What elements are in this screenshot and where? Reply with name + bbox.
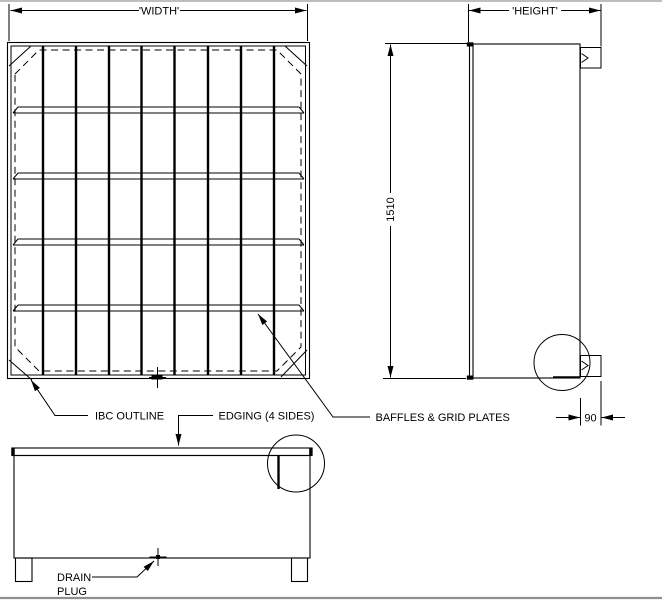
plan-grid-plate-1: [13, 107, 304, 113]
side-edging-cap-bottom: [467, 376, 474, 380]
chevron-right-icon: [582, 54, 589, 63]
ibc-outline-dashed: [15, 50, 301, 371]
edging-leader: [179, 416, 214, 446]
front-body-rect: [14, 456, 310, 559]
width-dimension: 'WIDTH': [9, 4, 308, 41]
front-edging-cap-right: [309, 448, 312, 456]
plan-chamfer-bottom-left: [9, 360, 32, 380]
height-dim-text: 'HEIGHT': [512, 6, 558, 18]
plan-centre-mark: [149, 367, 166, 388]
edge-depth-dim-text: 90: [584, 413, 596, 425]
front-leg-left: [16, 558, 33, 582]
edging-label: EDGING (4 SIDES): [219, 411, 315, 423]
plan-grid-plate-4: [13, 305, 304, 311]
drain-plug-label-line2: PLUG: [57, 586, 87, 598]
side-body-rect: [473, 44, 580, 378]
ibc-outline-leader: [31, 380, 88, 416]
side-height-dim-text: 1510: [385, 197, 397, 221]
technical-drawing: 'WIDTH' 'HEIGHT' 1510 90: [0, 0, 662, 603]
plan-chamfer-top-left: [9, 46, 31, 66]
front-edging-cap-left: [11, 448, 14, 456]
side-height-dimension: 1510: [383, 44, 468, 379]
height-dimension: 'HEIGHT': [469, 4, 602, 47]
front-detail-circle: [268, 435, 325, 492]
front-view: [11, 435, 324, 582]
chevron-right-icon: [582, 361, 589, 370]
plan-grid-plate-2: [13, 173, 304, 179]
edge-depth-dimension: 90: [556, 381, 625, 426]
plan-view: [8, 43, 310, 389]
side-detail-circle: [534, 335, 590, 391]
front-leg-right: [292, 558, 308, 582]
plan-baffle-bars: [43, 46, 274, 375]
drain-plug-leader: [92, 561, 154, 577]
plan-outer-rect: [8, 43, 310, 379]
side-bracket-bottom: [581, 356, 602, 377]
side-edging-cap-top: [467, 42, 474, 46]
drain-plug-label-line1: DRAIN: [57, 572, 91, 584]
side-view: [467, 42, 601, 390]
cad-drawing-canvas: 'WIDTH' 'HEIGHT' 1510 90: [0, 0, 662, 603]
plan-chamfer-top-right: [285, 46, 307, 66]
front-edging-band: [12, 448, 312, 456]
plan-grid-plate-3: [13, 239, 304, 245]
plan-inner-rect: [11, 46, 306, 375]
side-bracket-top: [581, 48, 602, 69]
width-dim-text: 'WIDTH': [139, 6, 179, 18]
ibc-outline-label: IBC OUTLINE: [95, 411, 164, 423]
baffles-label: BAFFLES & GRID PLATES: [376, 412, 510, 424]
